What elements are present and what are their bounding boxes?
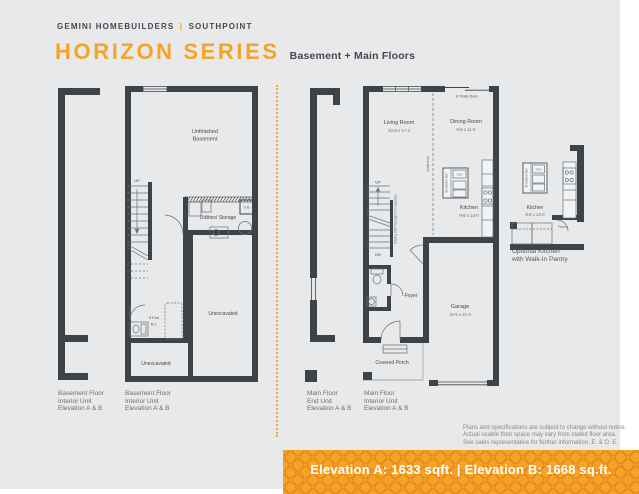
plan-label-line: Elevation A & B: [58, 405, 104, 413]
plan-label-line: Interior Unit: [58, 398, 104, 406]
tub-label: TUB: [243, 206, 249, 210]
plan-label-basement-left: Basement Floor Interior Unit Elevation A…: [58, 390, 104, 413]
brand-divider: |: [178, 22, 185, 31]
garage-entry-door: [410, 245, 423, 264]
brand-line: GEMINI HOMEBUILDERS | SOUTHPOINT: [57, 22, 253, 31]
disclaimer-line: Actual usable floor space may vary from …: [463, 432, 626, 439]
optional-kitchen-dims: 9-8 x 13-0: [525, 212, 545, 217]
elevation-banner: Elevation A: 1633 sqft. | Elevation B: 1…: [283, 450, 639, 494]
plan-label-line: Main Floor: [364, 390, 408, 398]
community-name: SOUTHPOINT: [189, 22, 253, 31]
dining-room-dims: 9-8 x 11-9: [456, 127, 476, 132]
optional-breakfast-bar-label: Breakfast Bar: [525, 167, 529, 187]
kitchen-dims: 9-8 x 12-0: [459, 213, 479, 218]
kitchen-label: Kitchen: [460, 205, 478, 211]
caption-line1: Optional Kitchen: [512, 248, 568, 256]
living-room-window: [383, 85, 421, 93]
main-floorplan: 6' Patio Door Bulkhead UP DN Railing Wit…: [303, 82, 503, 394]
brand-name: GEMINI HOMEBUILDERS: [57, 22, 174, 31]
disclaimer: Plans and specifications are subject to …: [463, 425, 626, 447]
dw-label: D/W: [457, 173, 463, 177]
unfinished-basement-line1: Unfinished: [192, 129, 218, 135]
main-stairs: [367, 186, 390, 248]
plan-label-main-interior: Main Floor Interior Unit Elevation A & B: [364, 390, 408, 413]
optional-kitchen-island: D/W Breakfast Bar: [523, 163, 547, 193]
plan-label-line: End Unit: [307, 398, 351, 406]
caption-line2: with Walk-In Pantry: [512, 256, 568, 264]
pantry-label: Pantry: [558, 225, 568, 229]
patio-door-label: 6' Patio Door: [456, 95, 479, 99]
bath-rough-in: 3 Pce R.I.: [130, 303, 182, 339]
unexcavated-right-label: Unexcavated: [208, 311, 237, 317]
title-row: HORIZON SERIES Basement + Main Floors: [55, 39, 415, 65]
bath-label-line2: R.I.: [151, 322, 157, 327]
plan-label-line: Elevation A & B: [307, 405, 351, 413]
garage-door: [438, 382, 487, 385]
basement-neighbor-wall: [58, 88, 100, 380]
breakfast-bar-label: Breakfast Bar: [445, 172, 449, 192]
plan-label-line: Elevation A & B: [364, 405, 408, 413]
kitchen-counter: [482, 160, 493, 237]
end-unit-window: [310, 278, 317, 300]
disclaimer-line: Plans and specifications are subject to …: [463, 425, 626, 432]
plan-label-line: Basement Floor: [125, 390, 171, 398]
disclaimer-line: See sales representative for further inf…: [463, 440, 626, 447]
unexcavated-bottom-label: Unexcavated: [141, 361, 170, 367]
basement-window: [143, 85, 167, 93]
living-room-label: Living Room: [384, 120, 415, 126]
main-end-unit-wall: [305, 88, 340, 382]
bath-label-line1: 3 Pce: [149, 315, 160, 320]
kitchen-island: D/W Breakfast Bar: [443, 168, 468, 198]
bulkhead-label: Bulkhead: [426, 157, 430, 172]
plan-label-main-end: Main Floor End Unit Elevation A & B: [307, 390, 351, 413]
garage-dims: 10-5 x 21-0: [449, 312, 471, 317]
dining-room-label: Dining Room: [450, 119, 482, 125]
unfinished-basement-line2: Basement: [193, 137, 218, 143]
page-subtitle: Basement + Main Floors: [290, 50, 415, 62]
patio-door: [445, 85, 489, 93]
elevation-banner-text: Elevation A: 1633 sqft. | Elevation B: 1…: [310, 462, 611, 483]
basement-floorplan: UP TUB Utilities/ Storage: [55, 82, 265, 384]
page-title: HORIZON SERIES: [55, 39, 280, 65]
utilities-label: Utilities/ Storage: [200, 215, 237, 221]
railing-note: Railing With Wrought Iron Spindles: [394, 194, 398, 244]
covered-porch-label: Covered Porch: [375, 360, 409, 366]
optional-kitchen-label: Kitchen: [527, 205, 544, 211]
main-dn-label: DN: [375, 252, 381, 257]
brochure-page: GEMINI HOMEBUILDERS | SOUTHPOINT HORIZON…: [0, 0, 639, 494]
plan-label-basement-main: Basement Floor Interior Unit Elevation A…: [125, 390, 171, 413]
plan-label-line: Elevation A & B: [125, 405, 171, 413]
plan-label-line: Basement Floor: [58, 390, 104, 398]
living-room-dims: 10-8 x 17-3: [388, 128, 410, 133]
basement-up-label: UP: [134, 178, 140, 183]
plan-label-line: Main Floor: [307, 390, 351, 398]
optional-kitchen-caption: Optional Kitchen with Walk-In Pantry: [512, 248, 568, 264]
orange-dotted-divider: [276, 85, 278, 437]
plan-label-line: Interior Unit: [364, 398, 408, 406]
foyer-label: Foyer: [405, 293, 418, 299]
optional-dw-label: D/W: [536, 168, 542, 172]
plan-label-line: Interior Unit: [125, 398, 171, 406]
powder-room: [367, 265, 403, 311]
main-up-label: UP: [375, 180, 381, 185]
garage-label: Garage: [451, 304, 469, 310]
